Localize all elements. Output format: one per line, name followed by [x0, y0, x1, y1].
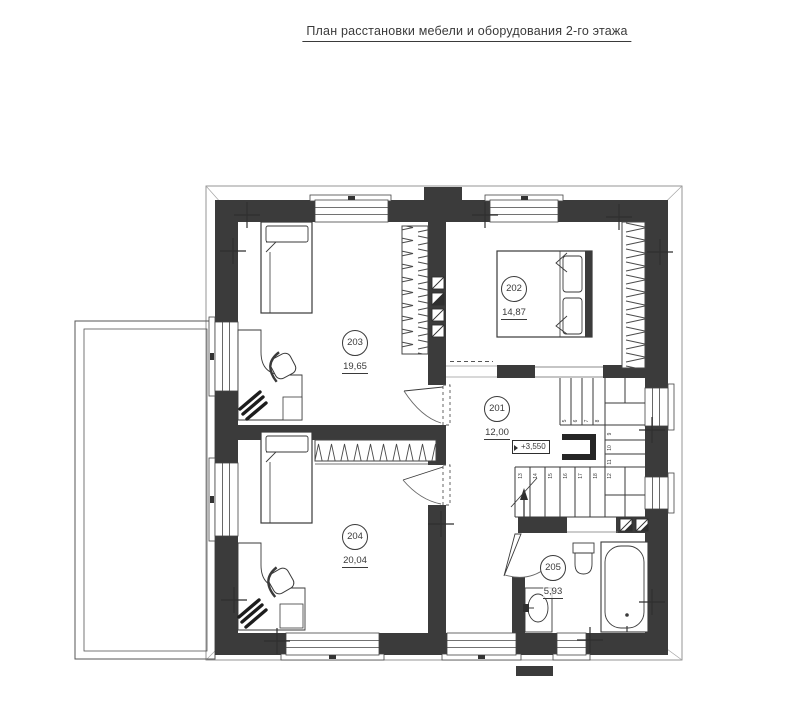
elevation-mark: +3,550 [512, 440, 550, 454]
window-203-top [310, 195, 391, 222]
step-number: 6 [573, 419, 579, 422]
door-203 [404, 385, 450, 425]
stair-railing [562, 437, 593, 457]
desk-pedestal [283, 397, 302, 420]
step-number: 9 [607, 432, 613, 435]
room-number-204: 204 [342, 524, 368, 550]
window-stair-right-2 [645, 473, 674, 513]
toilet-bowl [575, 553, 592, 574]
window-202-top [485, 195, 563, 222]
room-label-203: 203 19,65 [342, 330, 368, 374]
wall-hall-205 [518, 517, 567, 533]
room-label-204: 204 20,04 [342, 524, 368, 568]
drawing-title: План расстановки мебели и оборудования 2… [302, 24, 631, 42]
step-number: 18 [593, 473, 599, 479]
window-hall-bottom [442, 633, 521, 660]
step-number: 11 [607, 459, 613, 464]
room-area-204: 20,04 [342, 555, 368, 568]
step-number: 12 [607, 473, 613, 479]
doors [403, 362, 546, 578]
furniture-204 [238, 432, 436, 630]
step-number: 10 [607, 445, 613, 451]
room-area-205: 5,93 [543, 586, 564, 599]
step-number: 8 [595, 419, 601, 422]
room-number-201: 201 [484, 396, 510, 422]
wall-top [215, 200, 668, 222]
window-204-left [209, 458, 238, 541]
wall-hall-202-b [497, 365, 535, 378]
elevation-value: +3,550 [521, 442, 546, 451]
step-number: 13 [518, 473, 524, 479]
room-area-201: 12,00 [484, 427, 510, 440]
step-number: 7 [584, 419, 590, 422]
desk-pedestal [280, 604, 303, 628]
window-203-left [209, 317, 238, 396]
room-area-203: 19,65 [342, 361, 368, 374]
door-204 [403, 465, 450, 505]
chimney [424, 187, 462, 201]
pillow [563, 298, 582, 334]
room-number-205: 205 [540, 555, 566, 581]
terrace [75, 321, 215, 659]
headboard [585, 251, 592, 337]
step-number: 5 [562, 419, 568, 422]
room-label-205: 205 5,93 [540, 555, 566, 599]
room-number-203: 203 [342, 330, 368, 356]
pillow [563, 256, 582, 292]
floor-plan-drawing: 5 6 7 8 9 10 11 12 13 14 15 16 17 18 [0, 0, 800, 716]
elevation-triangle-icon [514, 445, 518, 451]
wall-left [215, 200, 238, 655]
faucet [523, 604, 529, 612]
bathtub-inner [605, 546, 644, 628]
step-number: 14 [533, 473, 539, 479]
porch-stub [516, 666, 553, 676]
wall-bottom [215, 633, 668, 655]
room-area-202: 14,87 [501, 307, 527, 320]
toilet-tank [573, 543, 594, 553]
window-205-bottom [553, 633, 590, 660]
furniture-203 [238, 222, 428, 420]
step-number: 17 [578, 473, 584, 479]
pillow [266, 436, 308, 452]
step-number: 16 [563, 473, 569, 479]
pillow [266, 226, 308, 242]
window-204-bottom [281, 633, 384, 660]
plan-canvas: 5 6 7 8 9 10 11 12 13 14 15 16 17 18 [0, 0, 800, 716]
window-stair-right-1 [645, 384, 674, 430]
step-number: 15 [548, 473, 554, 479]
room-label-202: 202 14,87 [501, 276, 527, 320]
room-label-201: 201 12,00 [484, 396, 510, 440]
room-number-202: 202 [501, 276, 527, 302]
door-202 [446, 362, 497, 378]
